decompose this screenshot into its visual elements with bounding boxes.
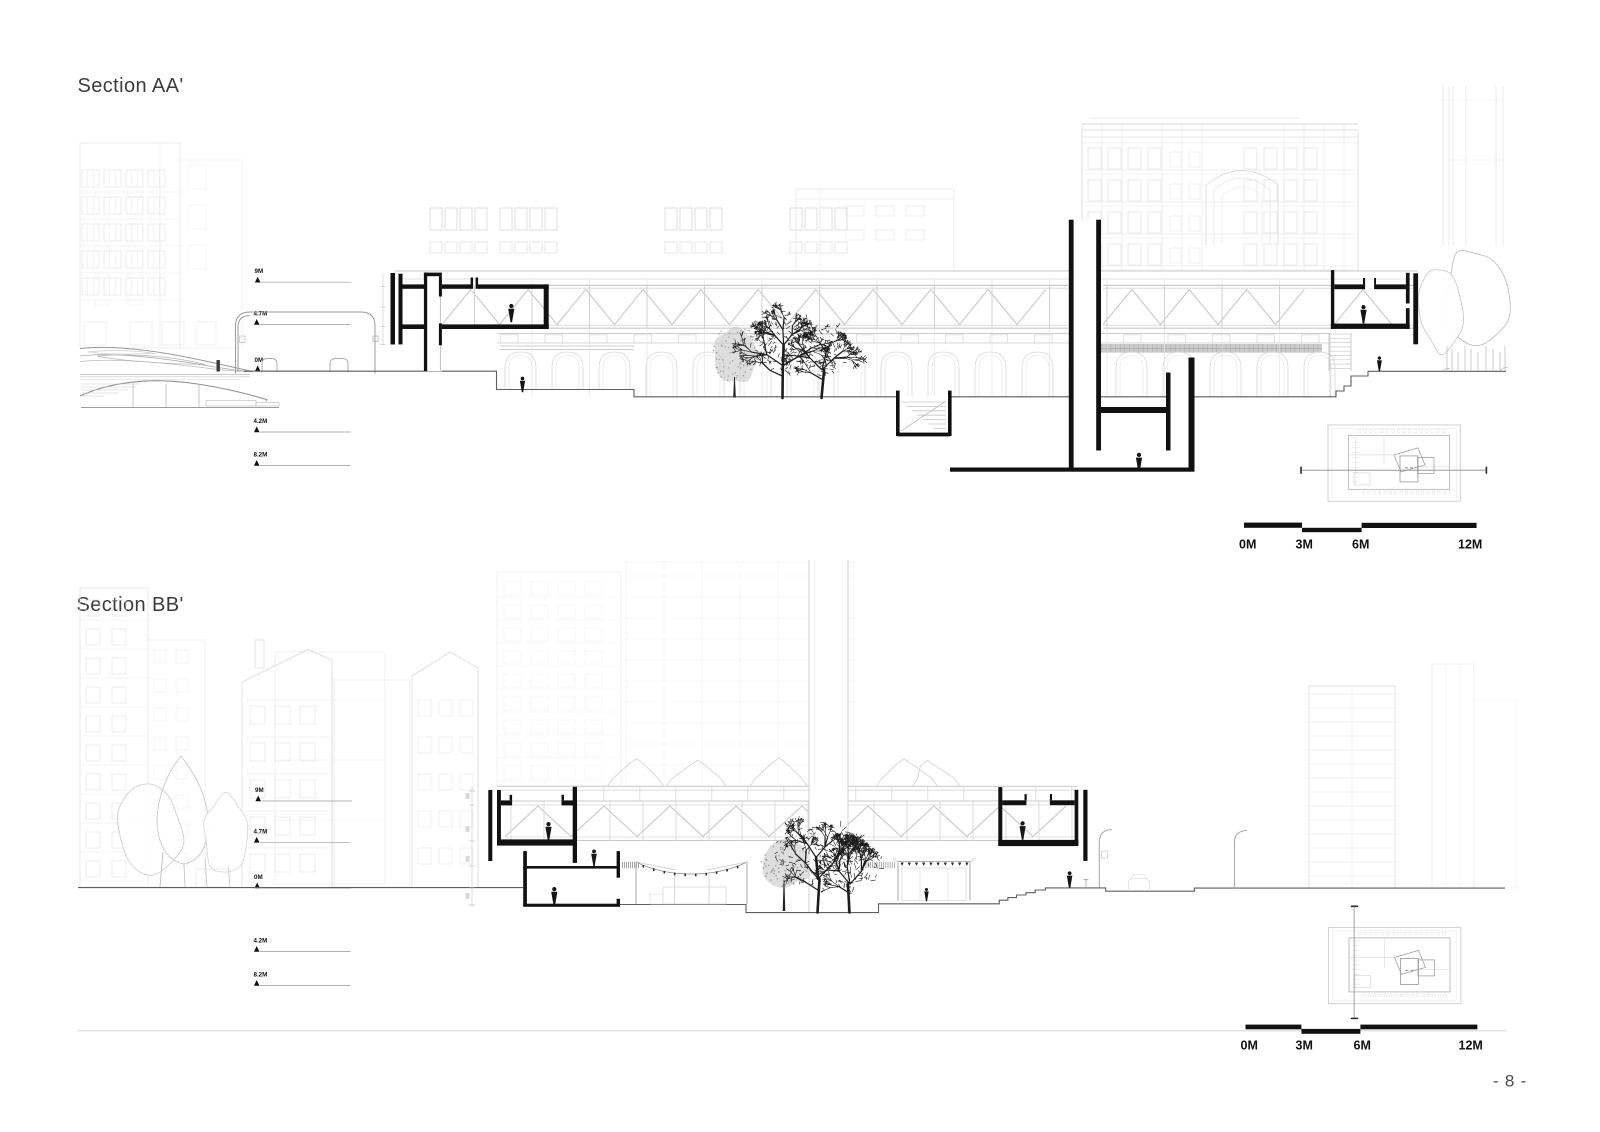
svg-text:12M: 12M — [1459, 1039, 1483, 1053]
svg-text:8.2M: 8.2M — [254, 452, 268, 459]
svg-text:0M: 0M — [1241, 1039, 1258, 1053]
svg-text:- 8 -: - 8 - — [1493, 1072, 1527, 1091]
svg-text:Section BB': Section BB' — [77, 594, 184, 616]
svg-text:4.7M: 4.7M — [254, 828, 268, 835]
svg-text:4.2M: 4.2M — [254, 938, 268, 945]
svg-text:9M: 9M — [255, 787, 264, 794]
svg-text:6M: 6M — [1352, 537, 1369, 551]
svg-text:12M: 12M — [1458, 537, 1482, 551]
svg-text:6M: 6M — [1354, 1039, 1371, 1053]
svg-text:4.2M: 4.2M — [254, 418, 268, 425]
svg-text:8.2M: 8.2M — [254, 972, 268, 979]
svg-text:3M: 3M — [1296, 537, 1313, 551]
svg-text:3M: 3M — [1296, 1039, 1313, 1053]
svg-text:9M: 9M — [255, 268, 264, 275]
svg-text:0M: 0M — [254, 874, 263, 881]
svg-text:0M: 0M — [1239, 537, 1256, 551]
svg-text:Section AA': Section AA' — [78, 75, 184, 97]
